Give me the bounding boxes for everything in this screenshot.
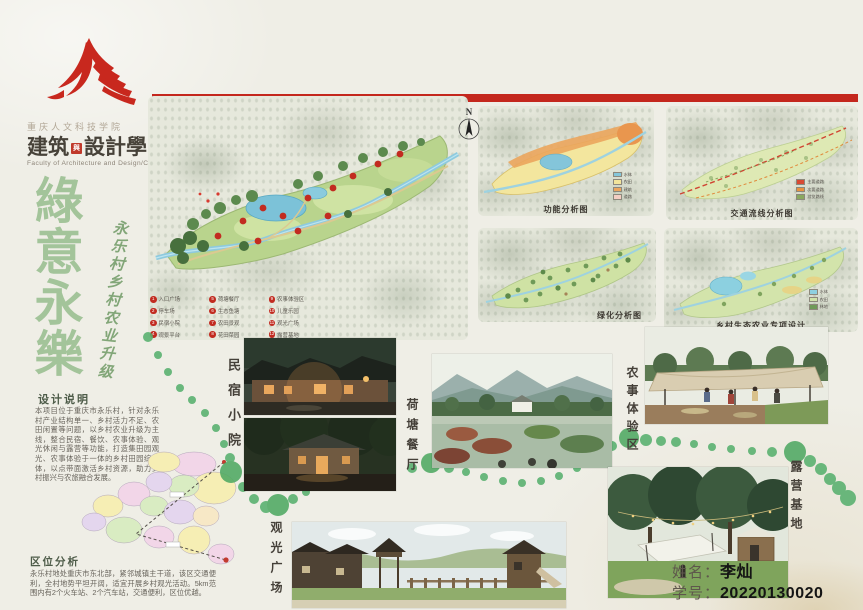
legend-label: 观光广场 [277,319,299,327]
legend-item: 3 民宿小院 [150,318,203,329]
legend-item: 9 农事体验区 [269,294,322,305]
footer-id-label: 学号： [672,586,720,602]
legend-row: 游览路线 [796,194,824,200]
footer-id: 学号：20220130020 [672,582,823,603]
title-char: 綠 [28,176,90,227]
poster-title: 綠 意 永 樂 [28,176,90,380]
diagram-caption: 绿化分析图 [478,310,656,321]
legend-label: 停车场 [159,307,175,315]
photo-farming-experience [645,327,828,424]
photo-sightseeing-plaza [292,522,566,608]
legend-number: 3 [150,320,157,327]
legend-item: 7 农田景观 [209,318,262,329]
legend-number: 10 [269,308,276,315]
legend-item: 1 入口广场 [150,294,203,305]
legend-swatch [796,187,805,193]
legend-label: 观景平台 [159,331,181,339]
legend-text: 农田 [820,297,828,303]
legend-number: 1 [150,296,157,303]
legend-number: 11 [269,320,276,327]
legend-swatch [613,187,622,193]
legend-row: 林地 [809,304,828,310]
legend-text: 主要道路 [807,179,824,185]
legend-item: 6 生态鱼塘 [209,306,262,317]
legend-text: 水体 [624,172,632,178]
diagram-function-analysis: 水体 农田 建筑 道路 功能分析图 [478,106,654,216]
legend-text: 农田 [624,179,632,185]
legend-number: 7 [209,320,216,327]
legend-swatch [809,289,818,295]
scene-label-farming-experience: 农事体验区 [624,366,641,456]
legend-item: 5 荷塘餐厅 [209,294,262,305]
legend-text: 建筑 [624,187,632,193]
diagram-caption: 功能分析图 [478,204,654,215]
faculty-name: 建筑 與 設計學院 [27,131,168,161]
plan-legend: 1 入口广场 2 停车场 3 民宿小院 4 观景平台 5 荷塘餐厅 [150,294,322,340]
title-char: 意 [28,227,90,278]
scene-label-camping-base: 露营基地 [788,460,805,536]
legend-text: 林地 [820,304,828,310]
legend-row: 农田 [613,179,632,185]
legend-number: 5 [209,296,216,303]
diagram-greening-map [478,228,656,316]
legend-label: 花田菜园 [218,331,240,339]
photo-pond-restaurant [432,354,612,468]
legend-label: 荷塘餐厅 [218,295,240,303]
legend-item: 10 儿童乐园 [269,306,322,317]
location-body: 永乐村地处重庆市东北部，紧邻城镇主干道，该区交通便利，全村地势平坦开阔，适宜开展… [30,569,216,598]
diagram-caption: 交通流线分析图 [666,208,858,219]
legend-label: 入口广场 [159,295,181,303]
scene-label-homestay: 民宿小院 [224,358,243,458]
diagram-circulation: 主要道路 次要道路 游览路线 交通流线分析图 [666,106,858,220]
legend-number: 8 [209,331,216,338]
legend-number: 9 [269,296,276,303]
legend-label: 民宿小院 [159,319,181,327]
poster-subtitle: 永乐村乡村农业升级 [93,219,131,382]
legend-row: 建筑 [613,187,632,193]
location-heading: 区位分析 [30,554,80,569]
legend-row: 水体 [613,172,632,178]
compass-n: N [466,107,473,117]
compass-icon: N [456,106,482,142]
scene-label-pond-restaurant: 荷塘餐厅 [404,398,421,478]
footer-name-label: 姓名： [672,565,720,581]
legend-swatch [796,194,805,200]
legend-text: 次要道路 [807,187,824,193]
legend-text: 道路 [624,194,632,200]
chongqing-map [66,446,240,570]
legend-number: 2 [150,308,157,315]
diagram-legend: 主要道路 次要道路 游览路线 [796,179,824,200]
scene-label-sightseeing-plaza: 观光广场 [268,521,285,601]
title-char: 樂 [28,329,90,380]
poster-root: 重庆人文科技学院 建筑 與 設計學院 Faculty of Architectu… [0,0,863,610]
master-plan [148,96,468,292]
title-char: 永 [28,278,90,329]
diagram-eco-agriculture: 水体 农田 林地 乡村生态农业专项设计 [664,228,858,332]
legend-label: 农事体验区 [277,295,304,303]
photo-homestay-courtyard-1 [244,338,396,415]
legend-swatch [796,179,805,185]
legend-number: 4 [150,331,157,338]
photo-homestay-courtyard-2 [244,418,396,491]
legend-swatch [613,179,622,185]
legend-label: 儿童乐园 [277,307,299,315]
school-logo [42,30,142,120]
faculty-name-en: Faculty of Architecture and Design/CCHST [27,160,168,167]
legend-text: 水体 [820,289,828,295]
legend-row: 次要道路 [796,187,824,193]
legend-swatch [809,304,818,310]
legend-label: 农田景观 [218,319,240,327]
legend-swatch [613,194,622,200]
faculty-prefix: 建筑 [27,131,69,161]
legend-swatch [613,172,622,178]
legend-row: 农田 [809,297,828,303]
diagram-greening: 绿化分析图 [478,228,656,322]
footer-id-value: 20220130020 [720,585,823,602]
diagram-legend: 水体 农田 建筑 道路 [613,172,632,201]
footer-name-value: 李灿 [720,564,753,581]
diagram-eco-map [664,228,858,326]
legend-number: 6 [209,308,216,315]
legend-row: 水体 [809,289,828,295]
legend-item: 4 观景平台 [150,329,203,340]
legend-number: 12 [269,331,276,338]
legend-row: 主要道路 [796,179,824,185]
legend-item: 11 观光广场 [269,318,322,329]
legend-swatch [809,297,818,303]
legend-label: 生态鱼塘 [218,307,240,315]
legend-row: 道路 [613,194,632,200]
legend-text: 游览路线 [807,194,824,200]
footer-name: 姓名：李灿 [672,558,753,582]
design-notes-heading: 设计说明 [38,391,90,407]
diagram-circulation-map [666,106,858,214]
legend-item: 2 停车场 [150,306,203,317]
diagram-legend: 水体 农田 林地 [809,289,828,310]
faculty-seal: 與 [71,143,82,154]
